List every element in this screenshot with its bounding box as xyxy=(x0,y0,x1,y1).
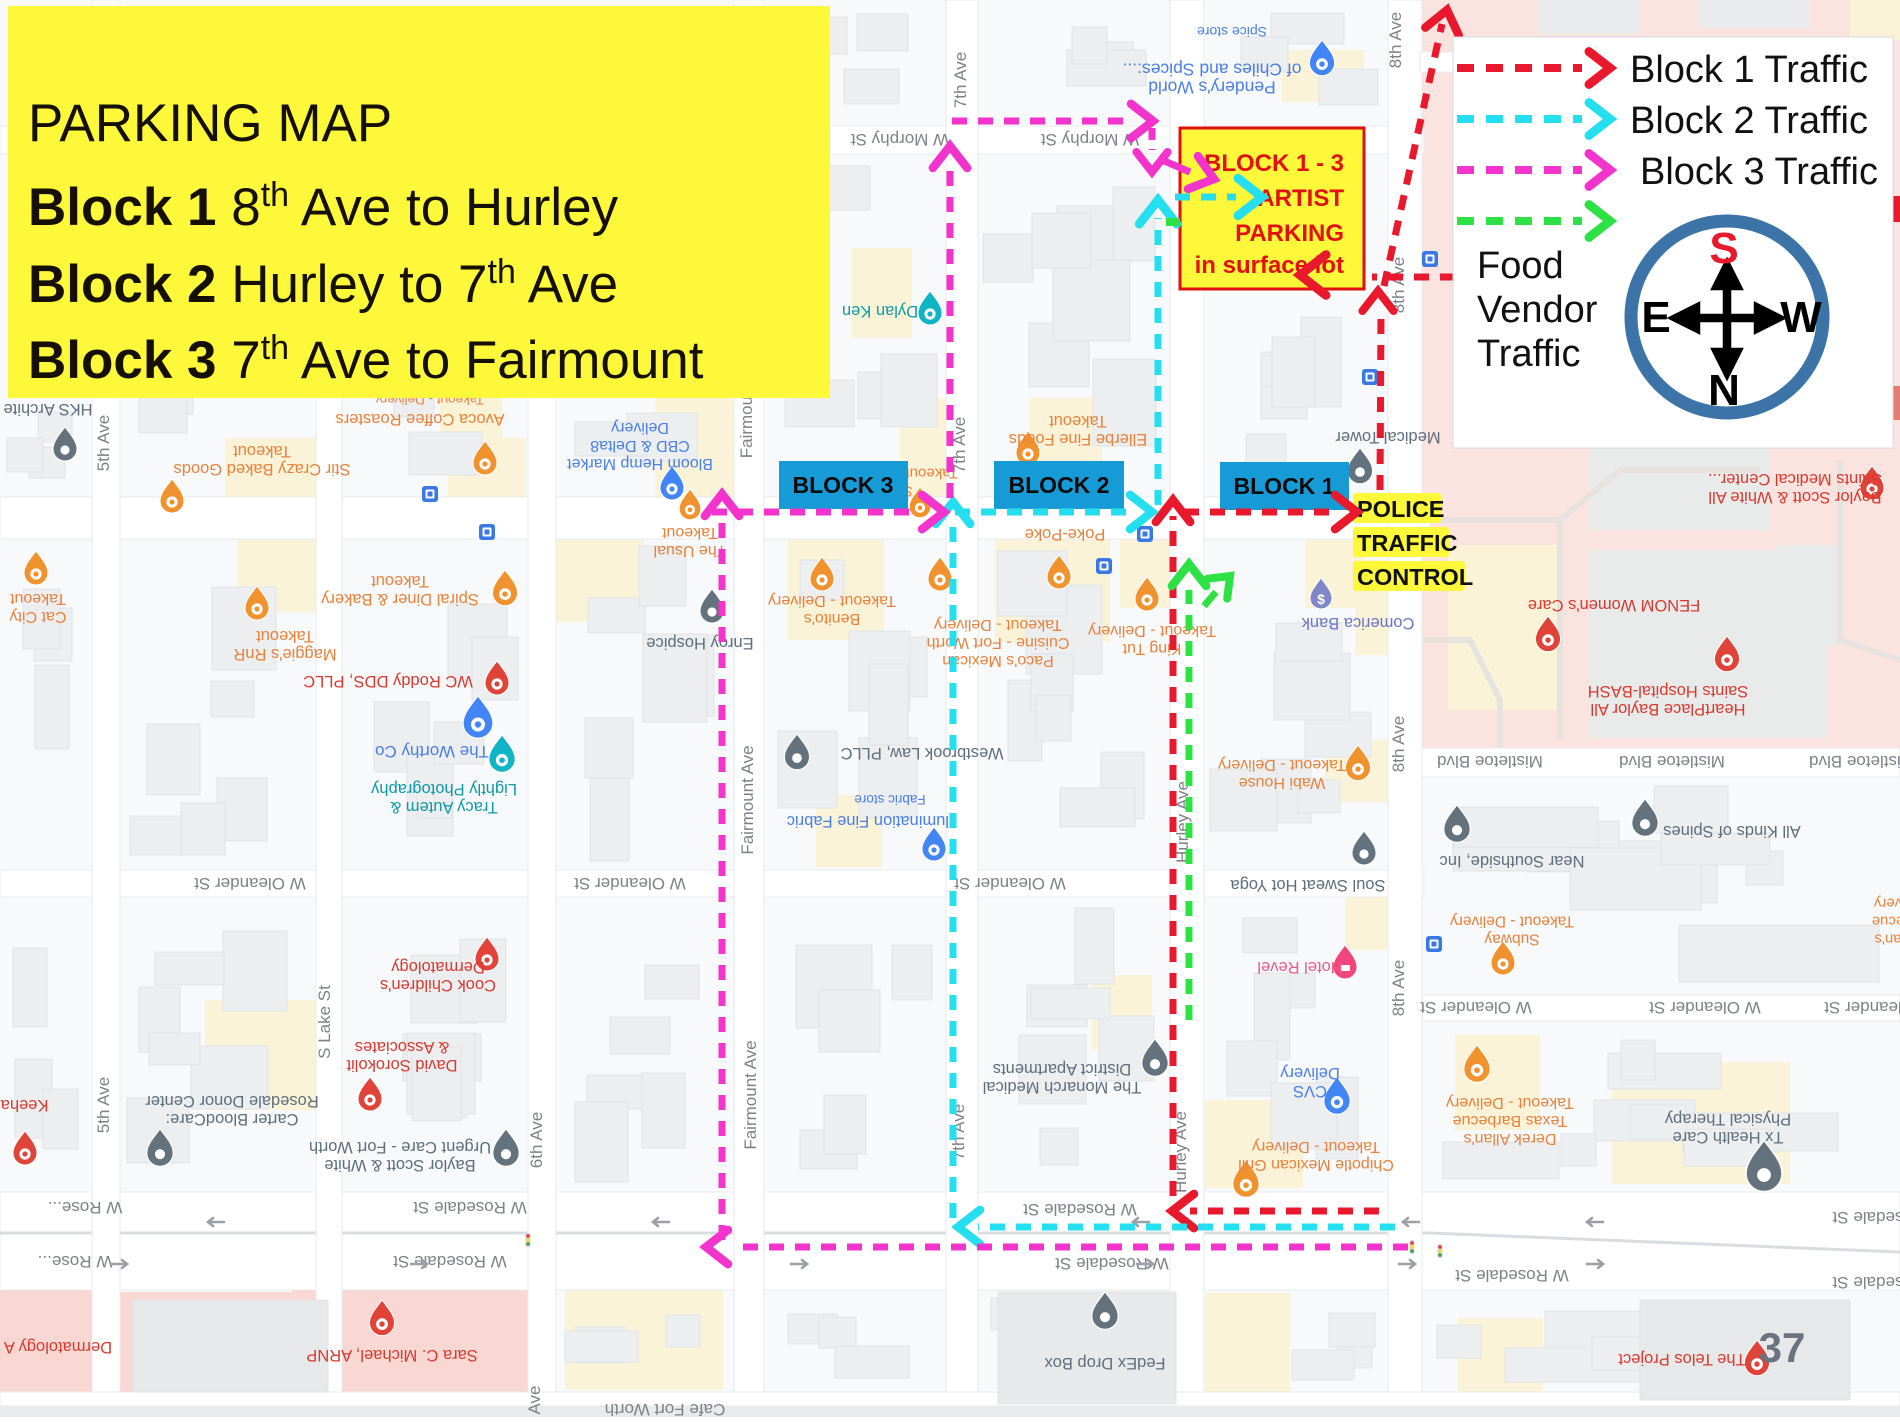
svg-text:W Rosedale St: W Rosedale St xyxy=(413,1198,527,1217)
svg-text:sedale St: sedale St xyxy=(1832,1273,1900,1292)
svg-text:Takeout: Takeout xyxy=(256,627,314,645)
svg-text:$: $ xyxy=(1317,591,1325,607)
svg-text:Baylor Scott & White: Baylor Scott & White xyxy=(324,1156,475,1174)
svg-text:Physical Therapy: Physical Therapy xyxy=(1664,1110,1791,1128)
svg-text:District Apartments: District Apartments xyxy=(993,1060,1131,1078)
svg-text:Avoca Coffee Roasters: Avoca Coffee Roasters xyxy=(335,410,504,428)
svg-text:5th Ave: 5th Ave xyxy=(94,1077,113,1133)
svg-text:W: W xyxy=(1780,293,1822,342)
svg-text:The Worthy Co: The Worthy Co xyxy=(375,742,489,761)
svg-text:Rosedale Donor Center: Rosedale Donor Center xyxy=(145,1092,319,1110)
svg-text:5th Ave: 5th Ave xyxy=(94,415,113,471)
svg-text:Block 1 8th Ave to Hurley: Block 1 8th Ave to Hurley xyxy=(28,176,619,237)
svg-text:W Rose...: W Rose... xyxy=(48,1198,123,1217)
svg-text:Pendery's World: Pendery's World xyxy=(1148,78,1276,98)
svg-text:Takeout: Takeout xyxy=(233,442,291,460)
svg-text:All Kinds of Spines: All Kinds of Spines xyxy=(1663,822,1801,840)
svg-text:37: 37 xyxy=(1759,1324,1806,1371)
svg-text:Takeout - Delivery: Takeout - Delivery xyxy=(1252,1138,1380,1155)
svg-text:of Chiles and Spices:...: of Chiles and Spices:... xyxy=(1123,60,1302,80)
svg-text:Poke-Poke: Poke-Poke xyxy=(1025,525,1106,543)
svg-text:S: S xyxy=(1709,224,1738,273)
svg-text:WC Roddy DDS, PLLC: WC Roddy DDS, PLLC xyxy=(303,672,473,690)
svg-text:Fairmount Ave: Fairmount Ave xyxy=(741,1040,760,1149)
svg-text:Enroy Hospice: Enroy Hospice xyxy=(646,634,753,652)
svg-text:Spiral Diner & Bakery: Spiral Diner & Bakery xyxy=(320,590,478,608)
svg-text:CVS: CVS xyxy=(1293,1082,1327,1100)
svg-text:Derek Allan's: Derek Allan's xyxy=(1464,1130,1557,1147)
svg-text:Keehan: Keehan xyxy=(0,1096,48,1114)
svg-text:Baylor Scott & White All: Baylor Scott & White All xyxy=(1708,488,1881,506)
svg-text:W Oleander St: W Oleander St xyxy=(574,874,686,893)
svg-text:BLOCK 3: BLOCK 3 xyxy=(793,472,894,498)
svg-text:ecue: ecue xyxy=(1872,913,1900,930)
svg-text:Cuisine - Fort Worth: Cuisine - Fort Worth xyxy=(927,634,1070,651)
svg-text:HKS Archite: HKS Archite xyxy=(4,400,93,418)
svg-text:Ave: Ave xyxy=(525,1386,544,1415)
svg-text:The Telos Project: The Telos Project xyxy=(1618,1350,1746,1368)
svg-text:BLOCK 2: BLOCK 2 xyxy=(1009,472,1110,498)
svg-text:The Usual: The Usual xyxy=(654,542,727,559)
svg-text:W Rosedale St: W Rosedale St xyxy=(1023,1200,1137,1219)
svg-text:Carter BloodCare:: Carter BloodCare: xyxy=(166,1110,299,1128)
svg-text:& Associates: & Associates xyxy=(355,1038,449,1056)
svg-text:Bloom Hemp Market: Bloom Hemp Market xyxy=(567,455,713,472)
svg-text:Ellerbe Fine Foods: Ellerbe Fine Foods xyxy=(1009,430,1148,448)
svg-text:Benito's: Benito's xyxy=(804,610,860,627)
svg-text:Lightly Photography: Lightly Photography xyxy=(370,780,517,798)
svg-text:Takeout: Takeout xyxy=(371,572,429,590)
svg-text:Dermatology: Dermatology xyxy=(390,958,484,976)
svg-text:Takeout: Takeout xyxy=(9,590,66,607)
svg-text:Delivery: Delivery xyxy=(611,419,669,436)
svg-text:Comerica Bank: Comerica Bank xyxy=(1301,614,1415,632)
svg-text:W Morphy St: W Morphy St xyxy=(1041,130,1140,149)
svg-text:W Rosedale St: W Rosedale St xyxy=(1455,1266,1569,1285)
svg-text:W Oleander St: W Oleander St xyxy=(1420,998,1532,1017)
svg-text:very: very xyxy=(1873,895,1900,912)
svg-text:Takeout: Takeout xyxy=(1049,412,1107,430)
svg-text:W Rosedale St: W Rosedale St xyxy=(393,1252,507,1271)
svg-text:Medical Tower: Medical Tower xyxy=(1335,428,1441,446)
svg-text:Spice store: Spice store xyxy=(1197,24,1267,40)
svg-text:7th Ave: 7th Ave xyxy=(951,52,970,108)
svg-text:BLOCK 1: BLOCK 1 xyxy=(1234,473,1335,499)
svg-text:Mistletoe Blvd: Mistletoe Blvd xyxy=(1619,752,1725,771)
svg-text:W Morphy St: W Morphy St xyxy=(851,130,950,149)
svg-text:Hurley Ave: Hurley Ave xyxy=(1171,1111,1190,1193)
svg-text:David Sorokolit: David Sorokolit xyxy=(346,1056,457,1074)
svg-text:Cat City: Cat City xyxy=(10,608,67,625)
svg-text:8th Ave: 8th Ave xyxy=(1389,716,1408,772)
svg-text:Soul Sweat Hot Yoga: Soul Sweat Hot Yoga xyxy=(1230,876,1386,894)
svg-text:Block 2 Traffic: Block 2 Traffic xyxy=(1630,100,1868,142)
svg-text:an's: an's xyxy=(1874,931,1900,948)
svg-text:Urgent Care - Fort Worth: Urgent Care - Fort Worth xyxy=(309,1138,491,1156)
svg-text:Tracy Autem &: Tracy Autem & xyxy=(390,798,498,816)
svg-text:BLOCK 1 - 3: BLOCK 1 - 3 xyxy=(1204,150,1344,177)
svg-text:Fairmount Ave: Fairmount Ave xyxy=(738,745,757,854)
svg-text:Stir Crazy Baked Goods: Stir Crazy Baked Goods xyxy=(174,460,351,478)
svg-text:Cafe Fort Worth: Cafe Fort Worth xyxy=(605,1400,726,1417)
svg-text:E: E xyxy=(1641,293,1670,342)
svg-text:Block 2 Hurley to 7th Ave: Block 2 Hurley to 7th Ave xyxy=(28,253,618,314)
svg-text:Hotel Revel: Hotel Revel xyxy=(1257,958,1342,976)
svg-text:Block 1 Traffic: Block 1 Traffic xyxy=(1630,49,1868,91)
svg-text:FENOM Women's Care: FENOM Women's Care xyxy=(1528,596,1700,614)
svg-text:W Rose...: W Rose... xyxy=(38,1252,113,1271)
svg-text:8th Ave: 8th Ave xyxy=(1386,12,1405,68)
svg-text:Takeout - Delivery: Takeout - Delivery xyxy=(1218,756,1346,773)
svg-text:CONTROL: CONTROL xyxy=(1357,564,1473,590)
svg-text:Block 3 Traffic: Block 3 Traffic xyxy=(1640,151,1878,193)
svg-text:CBD & Delta8: CBD & Delta8 xyxy=(590,437,690,454)
svg-text:Takeout: Takeout xyxy=(661,524,718,541)
svg-text:Delivery: Delivery xyxy=(1279,1064,1339,1082)
svg-text:HeartPlace Baylor All: HeartPlace Baylor All xyxy=(1591,700,1746,718)
svg-text:Texas Barbecue: Texas Barbecue xyxy=(1453,1112,1568,1129)
svg-text:Dermatology A: Dermatology A xyxy=(4,1338,112,1356)
svg-text:Takeout - Delivery: Takeout - Delivery xyxy=(768,592,896,609)
svg-text:Chipotle Mexican Grill: Chipotle Mexican Grill xyxy=(1238,1156,1394,1173)
svg-text:TRAFFIC: TRAFFIC xyxy=(1357,530,1458,556)
svg-text:W Oleander St: W Oleander St xyxy=(194,874,306,893)
svg-text:N: N xyxy=(1708,366,1740,415)
svg-text:Dylan Ken: Dylan Ken xyxy=(842,302,918,320)
svg-text:6th Ave: 6th Ave xyxy=(527,1112,546,1168)
svg-text:Traffic: Traffic xyxy=(1477,333,1580,375)
svg-text:Maggie's RnR: Maggie's RnR xyxy=(233,645,336,663)
svg-text:Fabric store: Fabric store xyxy=(854,792,925,807)
svg-text:Illumination Fine Fabric: Illumination Fine Fabric xyxy=(787,812,958,830)
svg-text:Sara C. Michael, ARNP: Sara C. Michael, ARNP xyxy=(306,1346,477,1364)
svg-text:POLICE: POLICE xyxy=(1357,496,1444,522)
svg-text:W Oleander St: W Oleander St xyxy=(1649,998,1761,1017)
svg-text:Mistletoe Blvd: Mistletoe Blvd xyxy=(1809,752,1900,771)
svg-text:Wabi House: Wabi House xyxy=(1239,774,1326,791)
svg-text:Block 3 7th Ave to Fairmount: Block 3 7th Ave to Fairmount xyxy=(28,329,704,390)
svg-text:PARKING: PARKING xyxy=(1235,220,1344,247)
svg-text:Saints Medical Center...: Saints Medical Center... xyxy=(1708,470,1882,488)
svg-text:sedale St: sedale St xyxy=(1832,1208,1900,1227)
svg-text:PARKING MAP: PARKING MAP xyxy=(28,94,392,153)
svg-text:Near Southside, Inc: Near Southside, Inc xyxy=(1440,852,1585,870)
svg-text:W Oleander St: W Oleander St xyxy=(1824,998,1900,1017)
svg-text:Saints Hospital-BASH: Saints Hospital-BASH xyxy=(1588,682,1748,700)
svg-text:Tx Health Care: Tx Health Care xyxy=(1673,1128,1784,1146)
svg-text:FedEx Drop Box: FedEx Drop Box xyxy=(1044,1354,1166,1372)
svg-text:ARTIST: ARTIST xyxy=(1257,185,1344,212)
svg-text:W Oleander St: W Oleander St xyxy=(954,874,1066,893)
svg-text:8th Ave: 8th Ave xyxy=(1389,960,1408,1016)
svg-text:Takeout - Delivery: Takeout - Delivery xyxy=(1446,1094,1574,1111)
svg-text:Westbrook Law, PLLC: Westbrook Law, PLLC xyxy=(840,744,1003,762)
svg-text:Mistletoe Blvd: Mistletoe Blvd xyxy=(1437,752,1543,771)
svg-text:Paco's Mexican: Paco's Mexican xyxy=(942,652,1054,669)
svg-text:Subway: Subway xyxy=(1484,930,1539,947)
svg-text:Food: Food xyxy=(1477,245,1564,287)
svg-text:S Lake St: S Lake St xyxy=(315,985,334,1059)
svg-text:Cook Children's: Cook Children's xyxy=(380,976,496,994)
svg-text:Takeout - Delivery: Takeout - Delivery xyxy=(1450,912,1574,929)
svg-text:Vendor: Vendor xyxy=(1477,289,1598,331)
svg-text:The Monarch Medical: The Monarch Medical xyxy=(983,1078,1142,1096)
svg-text:Takeout - Delivery: Takeout - Delivery xyxy=(1088,622,1216,639)
